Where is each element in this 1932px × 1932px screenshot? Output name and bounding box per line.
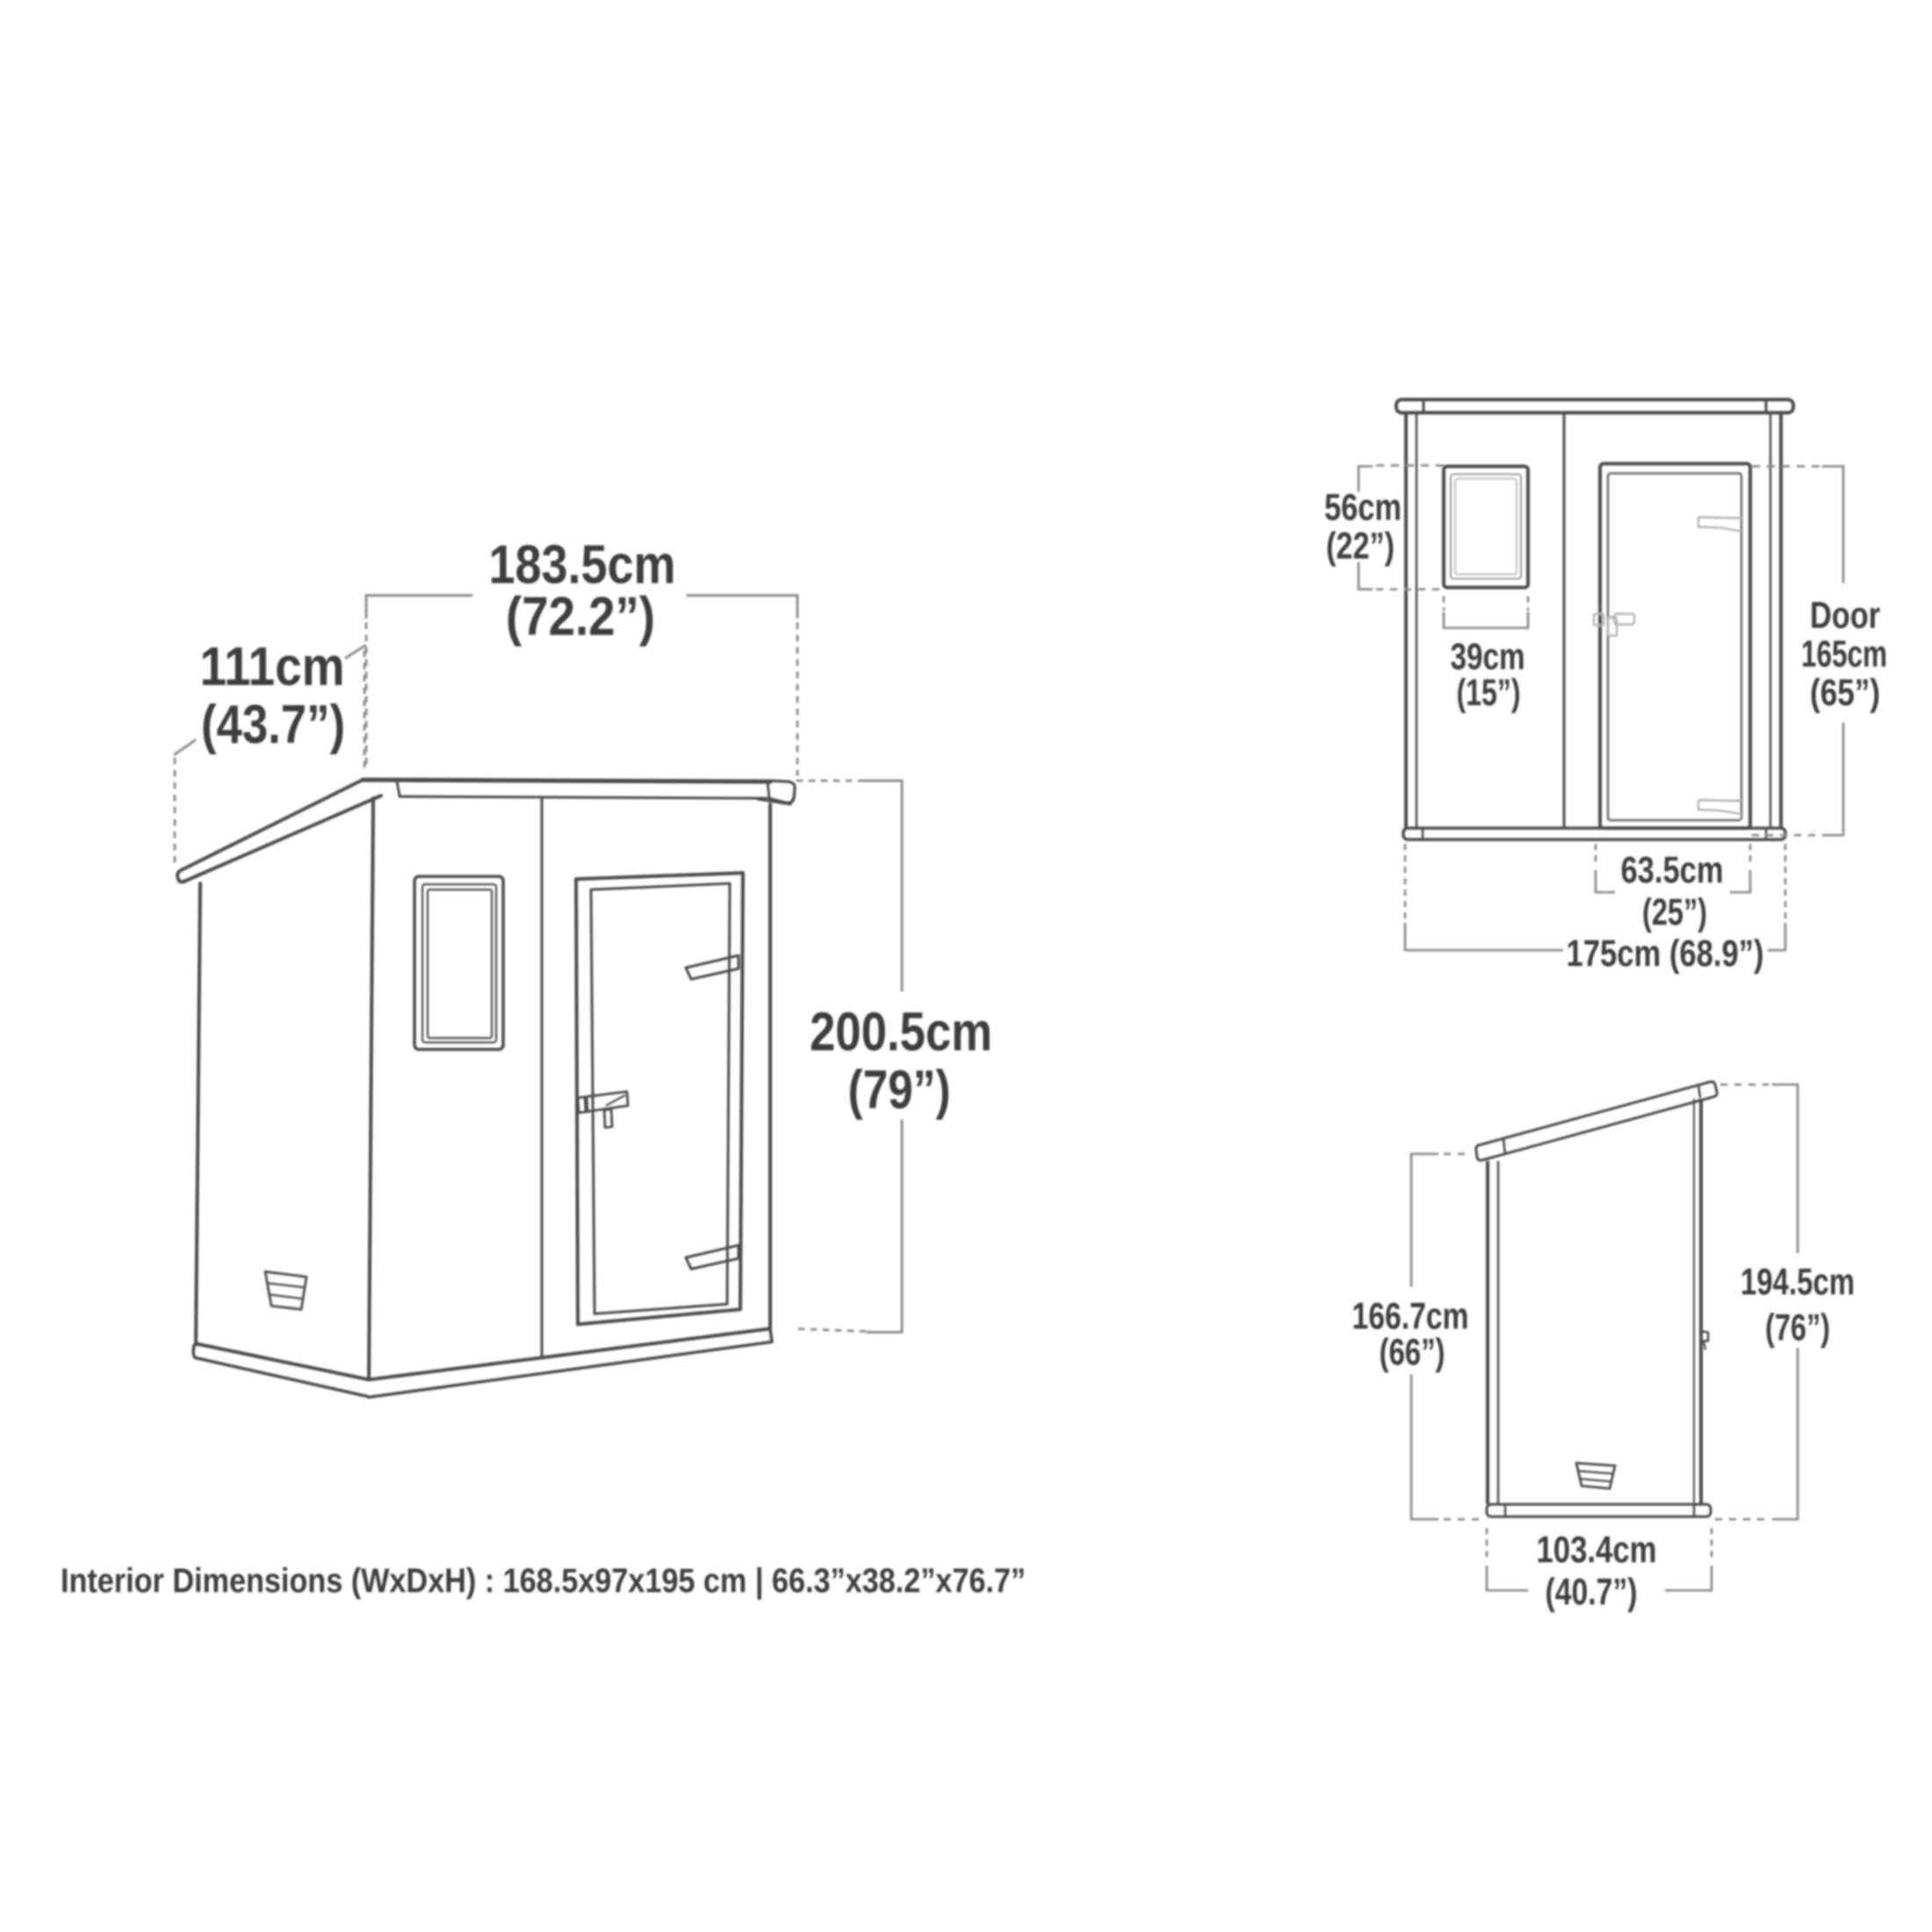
svg-text:(76”): (76”)	[1765, 1307, 1830, 1349]
svg-text:(15”): (15”)	[1457, 672, 1521, 714]
svg-text:194.5cm: 194.5cm	[1741, 1261, 1855, 1303]
svg-text:111cm: 111cm	[200, 637, 345, 697]
svg-text:200.5cm: 200.5cm	[810, 1002, 992, 1063]
svg-text:103.4cm: 103.4cm	[1537, 1529, 1657, 1571]
svg-text:Door: Door	[1810, 595, 1880, 637]
svg-text:Interior Dimensions (WxDxH) :: Interior Dimensions (WxDxH) : 168.5x97x1…	[61, 1562, 1026, 1600]
svg-text:175cm (68.9”): 175cm (68.9”)	[1567, 933, 1764, 975]
svg-text:56cm: 56cm	[1324, 487, 1402, 529]
svg-text:63.5cm: 63.5cm	[1621, 849, 1724, 891]
svg-text:(40.7”): (40.7”)	[1546, 1571, 1638, 1613]
svg-text:(43.7”): (43.7”)	[201, 695, 345, 755]
svg-text:165cm: 165cm	[1801, 633, 1887, 675]
svg-text:(65”): (65”)	[1810, 672, 1880, 714]
svg-text:(25”): (25”)	[1642, 891, 1707, 934]
svg-text:(66”): (66”)	[1380, 1331, 1445, 1373]
svg-text:(72.2”): (72.2”)	[506, 587, 655, 647]
svg-text:(22”): (22”)	[1326, 525, 1395, 567]
svg-text:(79”): (79”)	[848, 1060, 951, 1121]
